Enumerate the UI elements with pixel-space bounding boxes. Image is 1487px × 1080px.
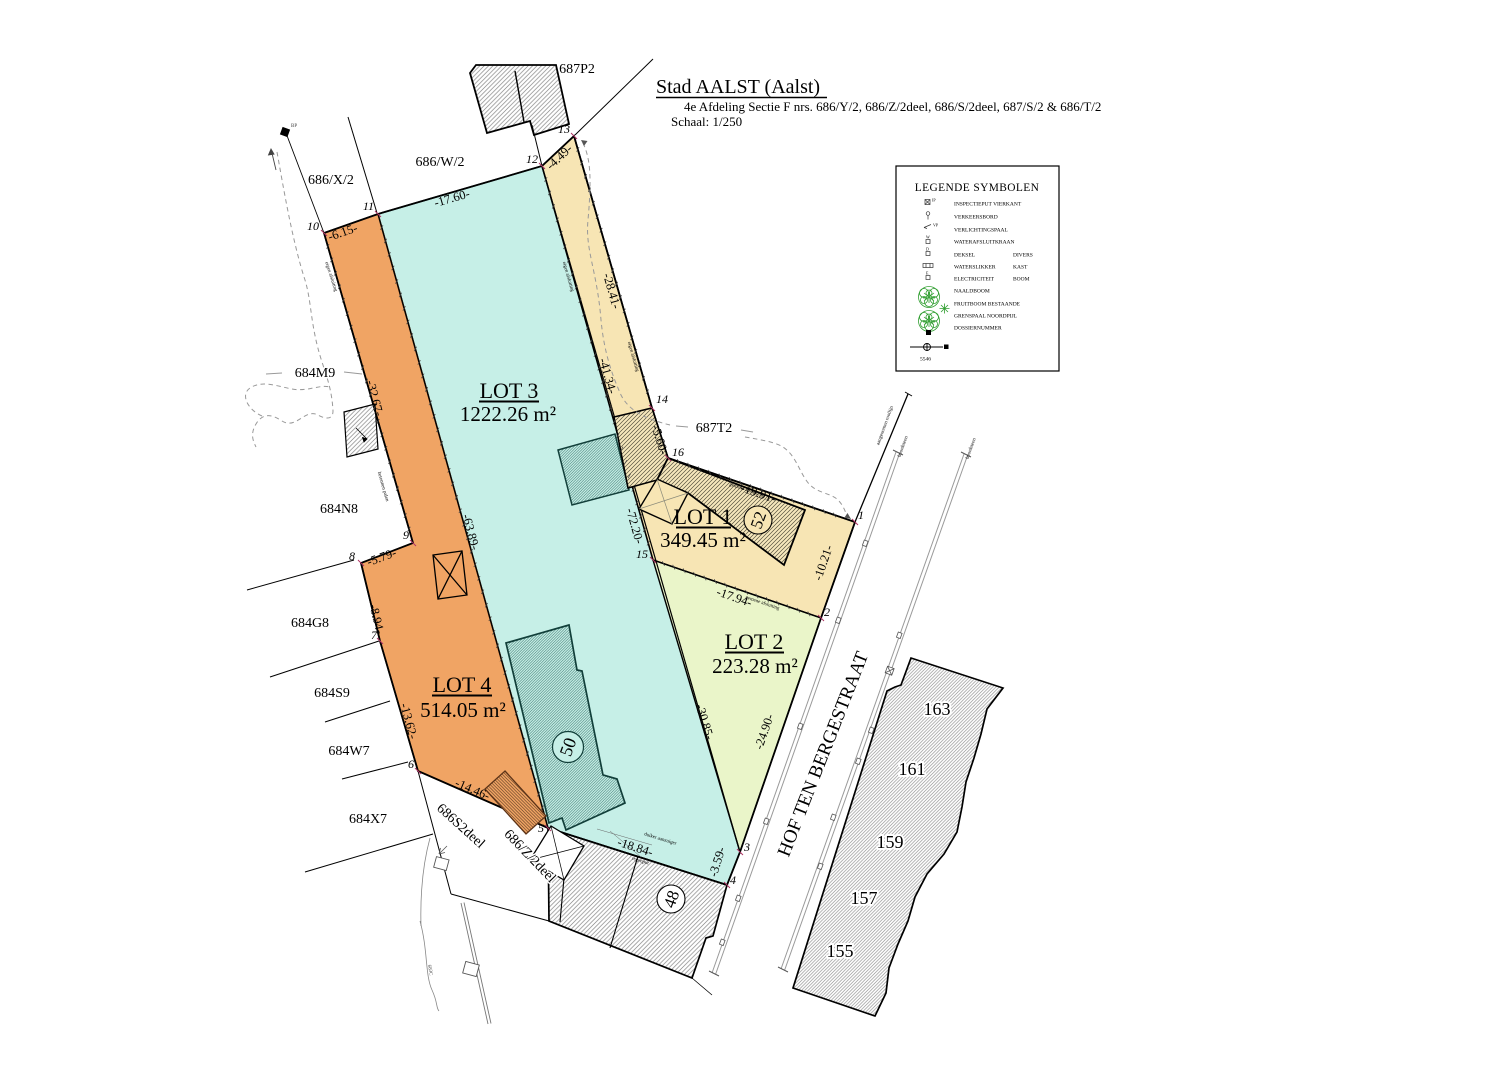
svg-text:DOSSIERNUMMER: DOSSIERNUMMER <box>954 326 1002 332</box>
svg-text:WATERSLIKKER: WATERSLIKKER <box>954 265 996 271</box>
svg-text:8: 8 <box>349 549 355 563</box>
svg-text:12: 12 <box>526 152 538 166</box>
svg-text:GRENSPAAL NOORDPIJL: GRENSPAAL NOORDPIJL <box>954 314 1018 320</box>
svg-text:14: 14 <box>656 392 668 406</box>
svg-text:BOOM: BOOM <box>1013 277 1030 283</box>
svg-text:NAALDBOOM: NAALDBOOM <box>954 289 990 295</box>
svg-text:5546: 5546 <box>920 357 931 363</box>
svg-text:514.05 m²: 514.05 m² <box>420 698 506 722</box>
svg-text:DEKSEL: DEKSEL <box>954 253 976 259</box>
svg-text:161: 161 <box>899 759 926 779</box>
svg-text:FRUITBOOM BESTAANDE: FRUITBOOM BESTAANDE <box>954 302 1021 308</box>
svg-text:D: D <box>926 247 929 252</box>
svg-text:11: 11 <box>363 199 374 213</box>
svg-text:LOT 4: LOT 4 <box>433 672 492 697</box>
svg-text:LEGENDE SYMBOLEN: LEGENDE SYMBOLEN <box>915 182 1039 194</box>
svg-text:684M9: 684M9 <box>295 366 335 381</box>
svg-text:159: 159 <box>877 832 904 852</box>
svg-text:686/X/2: 686/X/2 <box>308 173 354 188</box>
svg-text:INSPECTIEPUT VIERKANT: INSPECTIEPUT VIERKANT <box>954 202 1022 208</box>
svg-text:687T2: 687T2 <box>696 421 733 436</box>
svg-text:DIVERS: DIVERS <box>1013 253 1033 259</box>
svg-text:684W7: 684W7 <box>328 744 369 759</box>
svg-text:4: 4 <box>730 873 736 887</box>
svg-text:LOT 1: LOT 1 <box>674 504 733 529</box>
svg-text:4e Afdeling Sectie F nrs. 686/: 4e Afdeling Sectie F nrs. 686/Y/2, 686/Z… <box>684 99 1101 114</box>
svg-text:6: 6 <box>408 757 414 771</box>
svg-text:7: 7 <box>371 628 378 642</box>
svg-text:LOT 2: LOT 2 <box>725 629 784 654</box>
svg-text:157: 157 <box>851 888 878 908</box>
svg-text:10: 10 <box>307 219 319 233</box>
svg-text:ELECTRICITEIT: ELECTRICITEIT <box>954 277 995 283</box>
svg-text:686/W/2: 686/W/2 <box>416 155 465 170</box>
svg-text:3: 3 <box>743 840 750 854</box>
svg-text:WATERAFSLUITKRAAN: WATERAFSLUITKRAAN <box>954 240 1015 246</box>
svg-text:VERLICHTINGSPAAL: VERLICHTINGSPAAL <box>954 228 1009 234</box>
svg-text:1: 1 <box>858 508 864 522</box>
svg-text:13: 13 <box>558 122 570 136</box>
svg-text:KAST: KAST <box>1013 265 1028 271</box>
svg-text:155: 155 <box>827 941 854 961</box>
svg-text:1222.26 m²: 1222.26 m² <box>460 402 556 426</box>
svg-text:687P2: 687P2 <box>559 62 595 77</box>
svg-text:684S9: 684S9 <box>314 686 350 701</box>
svg-text:16: 16 <box>672 445 684 459</box>
svg-text:349.45 m²: 349.45 m² <box>660 528 746 552</box>
svg-text:684G8: 684G8 <box>291 616 329 631</box>
svg-text:BP: BP <box>291 124 297 129</box>
svg-text:2: 2 <box>824 605 830 619</box>
svg-text:163: 163 <box>924 699 951 719</box>
svg-text:684N8: 684N8 <box>320 502 358 517</box>
svg-text:Schaal: 1/250: Schaal: 1/250 <box>671 114 742 129</box>
svg-text:15: 15 <box>636 547 648 561</box>
svg-text:223.28 m²: 223.28 m² <box>712 654 798 678</box>
svg-text:Stad AALST (Aalst): Stad AALST (Aalst) <box>656 76 820 98</box>
svg-text:VP: VP <box>933 223 939 228</box>
svg-text:LOT 3: LOT 3 <box>480 378 539 403</box>
svg-text:W: W <box>926 235 930 240</box>
svg-text:684X7: 684X7 <box>349 812 387 827</box>
svg-text:VERKEERSBORD: VERKEERSBORD <box>954 215 998 221</box>
svg-text:5: 5 <box>538 821 544 835</box>
